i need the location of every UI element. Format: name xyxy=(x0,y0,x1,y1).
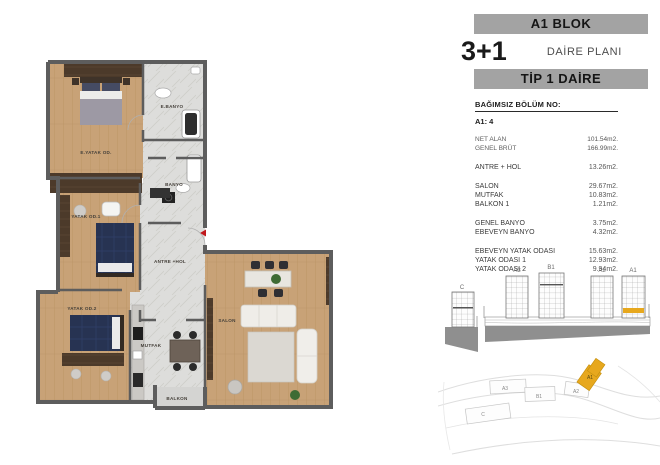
area-label: GENEL BRÜT xyxy=(475,144,516,153)
plant xyxy=(290,390,300,400)
wardrobe xyxy=(62,353,124,366)
chair xyxy=(265,261,274,269)
chair xyxy=(251,261,260,269)
site-label-c: C xyxy=(481,412,485,418)
unit-config: 3+1 xyxy=(461,35,507,68)
building-a3 xyxy=(506,276,528,318)
bed-headboard xyxy=(120,315,124,351)
shoe-cabinet xyxy=(150,188,170,198)
toilet xyxy=(191,67,200,74)
site-block-c xyxy=(465,403,511,424)
area-value: 10.83m2. xyxy=(589,191,618,200)
road xyxy=(452,440,660,454)
chair xyxy=(189,331,197,339)
area-row: MUTFAK 10.83m2. xyxy=(475,191,618,200)
elevation-label-a3: A3 xyxy=(513,268,521,274)
road xyxy=(443,382,450,450)
kitchen-sink xyxy=(133,351,142,359)
site-label-b1: B1 xyxy=(536,394,542,400)
label-bedroom1: YATAK OD.1 xyxy=(71,214,100,219)
pillow xyxy=(82,83,100,91)
label-master-bath: E.BANYO xyxy=(161,104,184,109)
ground-mass xyxy=(485,326,650,342)
building-c xyxy=(452,292,474,327)
plan-type-label: DAİRE PLANI xyxy=(547,46,622,58)
building-a2 xyxy=(591,276,613,318)
elevation-drawing: C A3 B1 A2 A1 xyxy=(440,256,660,360)
bed-blanket xyxy=(80,99,122,125)
armchair xyxy=(228,380,242,394)
area-label: GENEL BANYO xyxy=(475,219,525,228)
building-b1-floorline xyxy=(540,284,563,285)
elevation-diagram: C A3 B1 A2 A1 xyxy=(440,256,660,360)
chair xyxy=(189,363,197,371)
area-label: EBEVEYN BANYO xyxy=(475,228,535,237)
label-bedroom2: YATAK OD.2 xyxy=(67,306,96,311)
area-label: MUTFAK xyxy=(475,191,503,200)
area-row: GENEL BANYO 3.75m2. xyxy=(475,219,618,228)
bed-headboard xyxy=(80,77,122,83)
unit-type-row: 3+1 DAİRE PLANI xyxy=(461,35,648,68)
area-value: 15.63m2. xyxy=(589,247,618,256)
wardrobe xyxy=(60,195,70,257)
sink xyxy=(155,88,171,98)
wardrobe xyxy=(64,64,142,77)
area-value: 1.21m2. xyxy=(593,200,618,209)
area-label: EBEVEYN YATAK ODASI xyxy=(475,247,555,256)
chair xyxy=(173,363,181,371)
area-value: 3.75m2. xyxy=(593,219,618,228)
area-row: EBEVEYN BANYO 4.32m2. xyxy=(475,228,618,237)
label-livingroom: SALON xyxy=(218,318,236,323)
section-no-label: BAĞIMSIZ BÖLÜM NO: xyxy=(475,100,618,112)
chair xyxy=(279,261,288,269)
pillow xyxy=(98,263,132,272)
nightstand xyxy=(123,78,130,85)
area-row: ANTRE + HOL 13.26m2. xyxy=(475,163,618,172)
area-label: ANTRE + HOL xyxy=(475,163,521,172)
elevation-label-a1: A1 xyxy=(629,268,637,274)
site-label-a2: A2 xyxy=(573,389,579,395)
chair xyxy=(173,331,181,339)
rug xyxy=(248,332,294,382)
info-panel: A1 BLOK 3+1 DAİRE PLANI TİP 1 DAİRE BAĞI… xyxy=(461,14,648,274)
area-row: SALON 29.67m2. xyxy=(475,182,618,191)
bathtub-inner xyxy=(185,113,197,135)
site-label-a3: A3 xyxy=(502,386,508,392)
chair xyxy=(258,289,267,297)
section-no-value: A1: 4 xyxy=(475,117,648,126)
pillow xyxy=(112,317,120,349)
stove xyxy=(133,327,143,340)
pillow xyxy=(102,83,120,91)
area-value: 13.26m2. xyxy=(589,163,618,172)
fridge xyxy=(133,373,143,387)
building-b1 xyxy=(539,273,564,318)
floor-plan-drawing: E.YATAK OD. E.BANYO BANYO YATAK OD.1 ANT… xyxy=(36,55,336,430)
dining-table xyxy=(170,340,200,362)
stool xyxy=(71,369,81,379)
area-value: 166.99m2. xyxy=(587,144,618,153)
elevation-label-c: C xyxy=(460,285,465,291)
label-bath: BANYO xyxy=(165,182,183,187)
building-c-floorline xyxy=(453,307,473,308)
a1-highlighted-floor xyxy=(623,308,644,313)
chair xyxy=(274,289,283,297)
elevation-label-a2: A2 xyxy=(598,268,606,274)
plant-on-table xyxy=(271,274,281,284)
c-pedestal xyxy=(445,327,478,352)
area-row: EBEVEYN YATAK ODASI 15.63m2. xyxy=(475,247,618,256)
area-label: NET ALAN xyxy=(475,135,506,144)
label-kitchen: MUTFAK xyxy=(141,343,162,348)
area-label: BALKON 1 xyxy=(475,200,509,209)
area-row: BALKON 1 1.21m2. xyxy=(475,200,618,209)
site-label-a1: A1 xyxy=(587,375,593,381)
area-row: GENEL BRÜT 166.99m2. xyxy=(475,144,618,153)
stool xyxy=(101,371,111,381)
crib xyxy=(102,202,120,216)
bed-headboard xyxy=(96,273,134,277)
nightstand xyxy=(72,78,79,85)
area-row: NET ALAN 101.54m2. xyxy=(475,135,618,144)
sofa xyxy=(241,305,296,327)
area-value: 4.32m2. xyxy=(593,228,618,237)
dining-table-salon xyxy=(245,271,291,287)
block-title-bar: A1 BLOK xyxy=(474,14,648,34)
area-label: SALON xyxy=(475,182,499,191)
elevation-label-b1: B1 xyxy=(547,265,555,271)
room-areas-list: NET ALAN 101.54m2. GENEL BRÜT 166.99m2. … xyxy=(475,135,618,274)
area-value: 29.67m2. xyxy=(589,182,618,191)
site-plan-drawing: A3 B1 A2 C A1 xyxy=(438,358,660,460)
wardrobe xyxy=(50,173,142,193)
bed-sheet xyxy=(80,91,122,99)
unit-type-bar: TİP 1 DAİRE xyxy=(474,69,648,89)
label-balcony: BALKON xyxy=(166,396,188,401)
label-master-bedroom: E.YATAK OD. xyxy=(80,150,111,155)
area-value: 101.54m2. xyxy=(587,135,618,144)
tv-unit xyxy=(207,298,213,380)
label-entry-hall: ANTRE +HOL xyxy=(154,259,186,264)
site-plan: A3 B1 A2 C A1 xyxy=(438,358,660,460)
floor-plan: E.YATAK OD. E.BANYO BANYO YATAK OD.1 ANT… xyxy=(36,55,336,430)
